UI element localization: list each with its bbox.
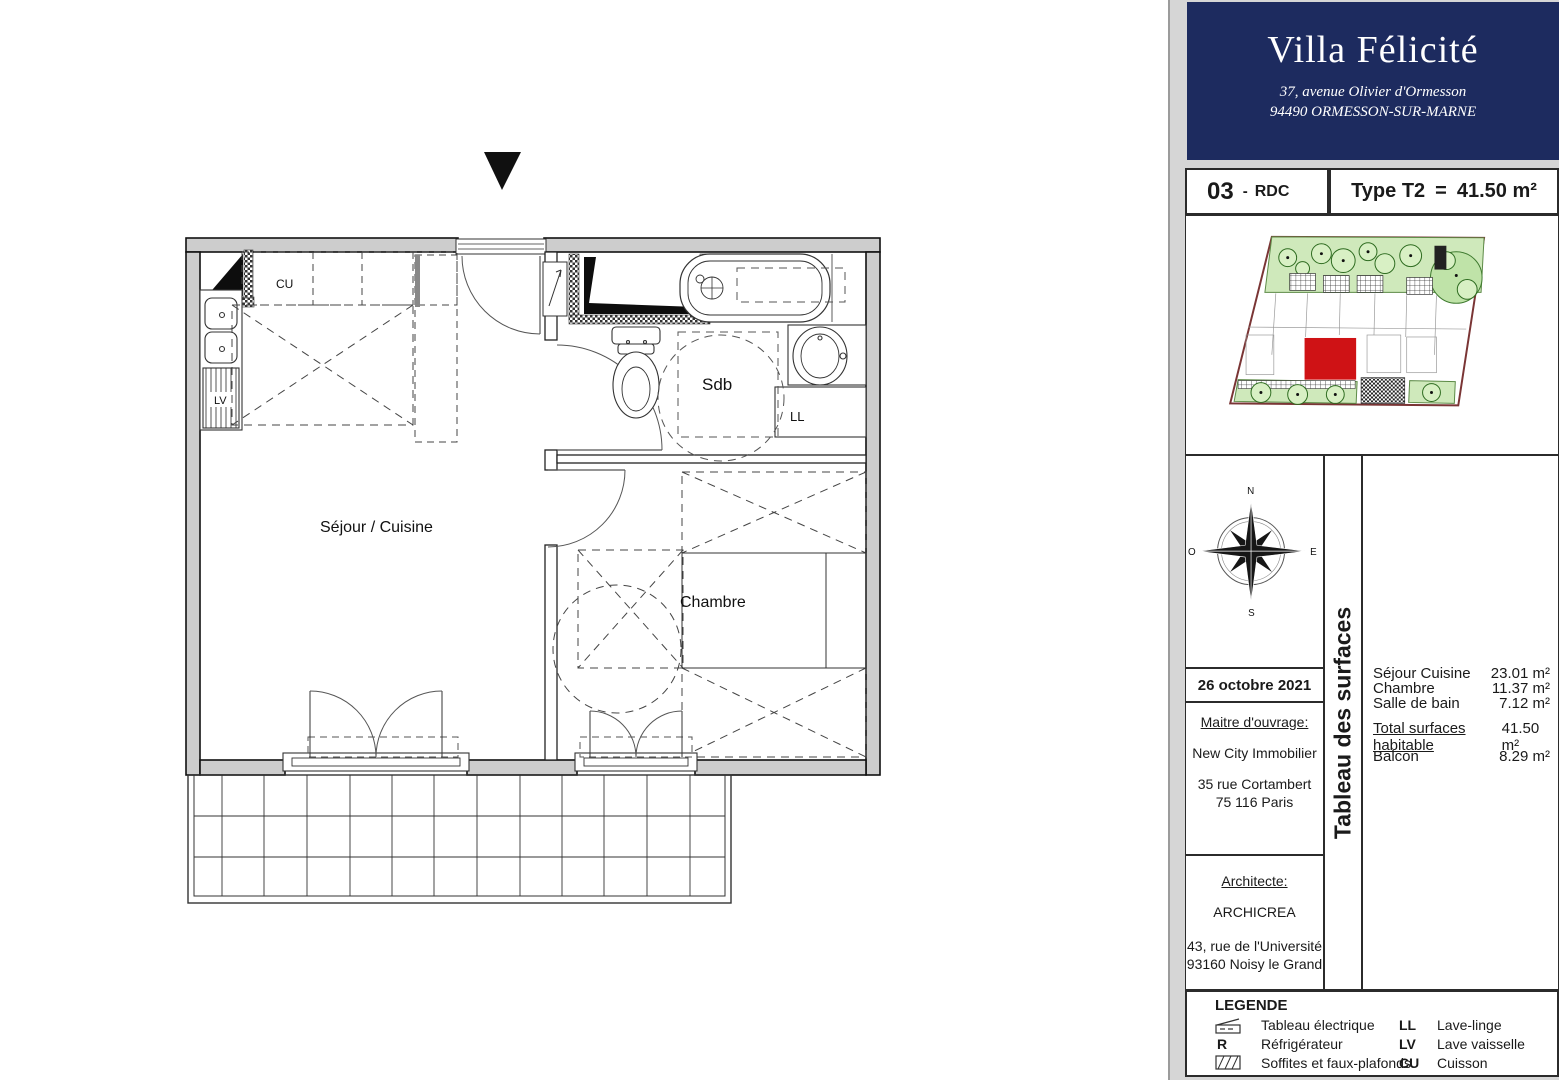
architecte-box: Architecte: ARCHICREA 43, rue de l'Unive… <box>1185 855 1324 990</box>
washing-machine <box>775 387 866 437</box>
washbasin <box>788 325 866 385</box>
ll-label: LL <box>790 409 804 424</box>
plan-sheet: { "header": { "title": "Villa Félicité",… <box>0 0 1559 1080</box>
maitre-heading: Maitre d'ouvrage: <box>1186 713 1323 731</box>
chambre-label: Chambre <box>680 594 746 611</box>
soffites-icon <box>1213 1054 1253 1074</box>
lv-label: LV <box>214 395 227 407</box>
table-balcon-row: Balcon 8.29 m² <box>1373 748 1550 765</box>
cu-symbol: CU <box>1399 1055 1439 1071</box>
bedroom-furniture <box>553 472 866 757</box>
bathtub <box>680 254 832 322</box>
unit-type-cell: Type T2 = 41.50 m² <box>1329 168 1559 215</box>
compass-e: E <box>1310 547 1317 558</box>
kitchen-soffit <box>232 305 413 425</box>
compass-rose: N S E O <box>1186 456 1323 667</box>
compass-n: N <box>1247 486 1254 497</box>
project-header: Villa Félicité 37, avenue Olivier d'Orme… <box>1187 2 1559 160</box>
kitchen-cabinets <box>242 252 457 305</box>
project-title: Villa Félicité <box>1187 28 1559 72</box>
sdb-label: Sdb <box>702 375 732 394</box>
unit-number-cell: 03 - RDC <box>1185 168 1329 215</box>
title-block-panel: Villa Félicité 37, avenue Olivier d'Orme… <box>1168 0 1559 1080</box>
chambre-french-door <box>575 711 697 771</box>
toilet <box>612 327 660 418</box>
bedroom-door <box>548 470 625 547</box>
lv-symbol: LV <box>1399 1036 1439 1052</box>
surfaces-title: Tableau des surfaces <box>1330 606 1357 838</box>
maitre-ouvrage-box: Maitre d'ouvrage: New City Immobilier 35… <box>1185 702 1324 855</box>
surfaces-title-strip: Tableau des surfaces <box>1324 455 1362 990</box>
ll-symbol: LL <box>1399 1017 1439 1033</box>
date-box: 26 octobre 2021 <box>1185 668 1324 702</box>
legend-box: LEGENDE Tableau électrique R Réfrigérate… <box>1185 990 1559 1077</box>
project-address: 37, avenue Olivier d'Ormesson 94490 ORME… <box>1187 82 1559 122</box>
fridge-symbol: R <box>1217 1036 1257 1052</box>
site-plan-box <box>1185 215 1559 455</box>
entrance-closet <box>415 255 457 442</box>
compass-o: O <box>1188 547 1196 558</box>
entrance-arrow-icon <box>484 152 521 190</box>
kitchen-sink <box>200 290 242 430</box>
tableau-electrique-icon <box>1213 1016 1253 1037</box>
entrance-door <box>456 239 546 334</box>
surfaces-table: Séjour Cuisine 23.01 m² Chambre 11.37 m²… <box>1362 455 1559 990</box>
architecte-heading: Architecte: <box>1186 872 1323 890</box>
sejour-french-door <box>283 691 469 771</box>
sejour-label: Séjour / Cuisine <box>320 519 433 536</box>
table-row: Salle de bain 7.12 m² <box>1373 695 1550 712</box>
legend-title: LEGENDE <box>1215 997 1288 1014</box>
site-plan <box>1186 216 1558 454</box>
floor-plan: LV CU <box>0 0 1160 1080</box>
cu-label: CU <box>276 277 293 291</box>
compass-s: S <box>1248 608 1255 619</box>
balcony <box>188 775 731 903</box>
compass-box: N S E O <box>1185 455 1324 668</box>
